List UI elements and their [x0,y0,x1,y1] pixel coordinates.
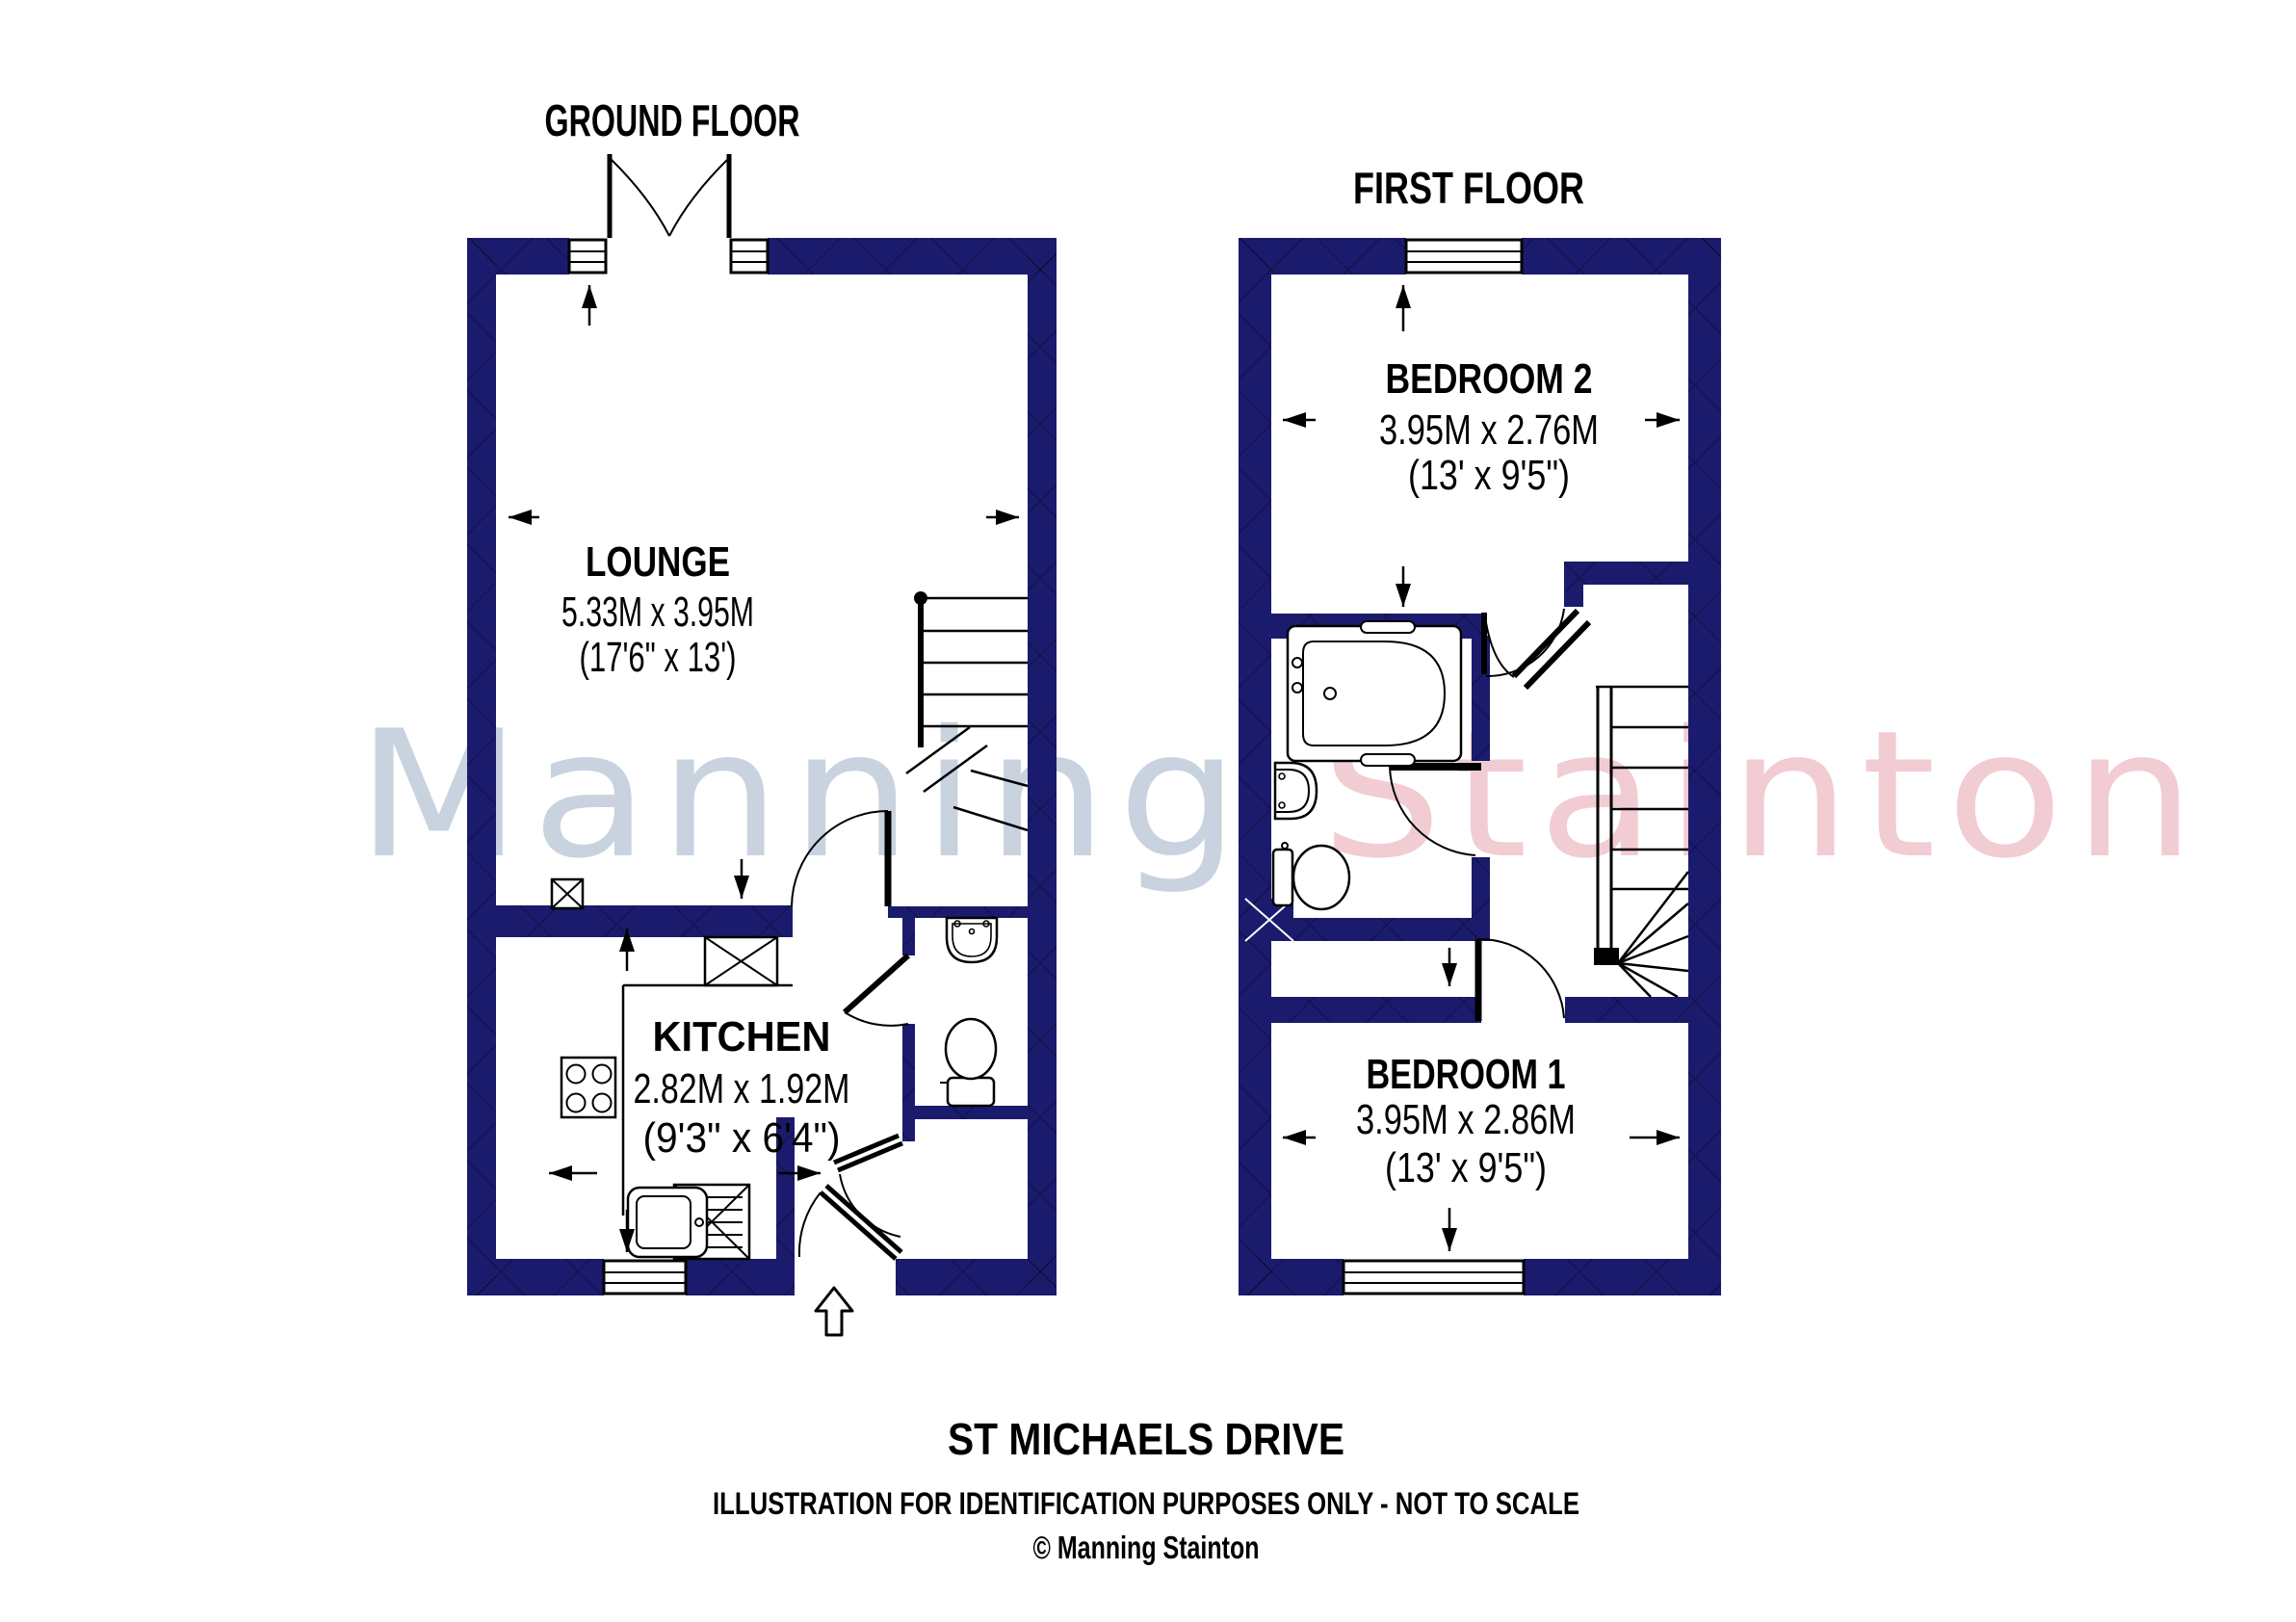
bath-icon [1288,621,1461,766]
lounge-metric: 5.33M x 3.95M [561,589,754,636]
entrance-door [799,1186,901,1259]
kitchen-sink-icon [628,1188,743,1257]
bedroom2-metric: 3.95M x 2.76M [1379,406,1599,454]
window-front-right [731,240,768,273]
window-kitchen [604,1261,686,1294]
street-address: ST MICHAELS DRIVE [948,1414,1344,1464]
footer: ST MICHAELS DRIVE ILLUSTRATION FOR IDENT… [713,1414,1579,1565]
french-doors [610,154,729,238]
wc-sink-icon [947,918,997,962]
watermark-part1: Manning [356,693,1321,897]
kitchen-metric: 2.82M x 1.92M [634,1065,850,1112]
bedroom1-door [1478,939,1564,1021]
disclaimer-text: ILLUSTRATION FOR IDENTIFICATION PURPOSES… [713,1486,1579,1521]
bedroom2-name: BEDROOM 2 [1386,355,1593,403]
lounge-name: LOUNGE [586,538,730,586]
bedroom1-imperial: (13' x 9'5") [1385,1144,1547,1191]
bedroom2-imperial: (13' x 9'5") [1408,452,1570,499]
bedroom2-label: BEDROOM 2 3.95M x 2.76M (13' x 9'5") [1379,355,1599,499]
bedroom1-label: BEDROOM 1 3.95M x 2.86M (13' x 9'5") [1356,1051,1576,1191]
entrance-arrow-icon [816,1288,852,1335]
ff-cupboard-door [1485,611,1589,688]
hob-icon [561,1058,615,1117]
bedroom1-name: BEDROOM 1 [1367,1051,1566,1098]
bathroom-toilet-icon [1273,843,1349,909]
wc-toilet-icon [940,1019,996,1106]
lounge-label: LOUNGE 5.33M x 3.95M (17'6" x 13') [561,538,754,681]
first-floor-title: FIRST FLOOR [1353,163,1584,213]
ground-floor-title: GROUND FLOOR [545,95,800,145]
bathroom-sink-icon [1275,763,1317,819]
appliance-xbox-top [705,937,777,985]
window-front-left [569,240,606,273]
copyright-text: © Manning Stainton [1033,1530,1260,1565]
window-bedroom1 [1344,1261,1524,1294]
floorplan-svg: Manning Stainton GROUND FLOOR [0,0,2296,1622]
gf-cupboard-door [834,1136,902,1237]
kitchen-label: KITCHEN 2.82M x 1.92M (9'3" x 6'4") [634,1013,850,1162]
unit-xbox-small [552,879,583,908]
wc-door [845,955,908,1026]
kitchen-imperial: (9'3" x 6'4") [643,1114,841,1162]
floorplan-page: Manning Stainton GROUND FLOOR [0,0,2296,1622]
bedroom1-metric: 3.95M x 2.86M [1356,1096,1576,1143]
kitchen-name: KITCHEN [653,1013,831,1060]
window-bedroom2 [1406,240,1522,273]
lounge-imperial: (17'6" x 13') [580,634,737,681]
